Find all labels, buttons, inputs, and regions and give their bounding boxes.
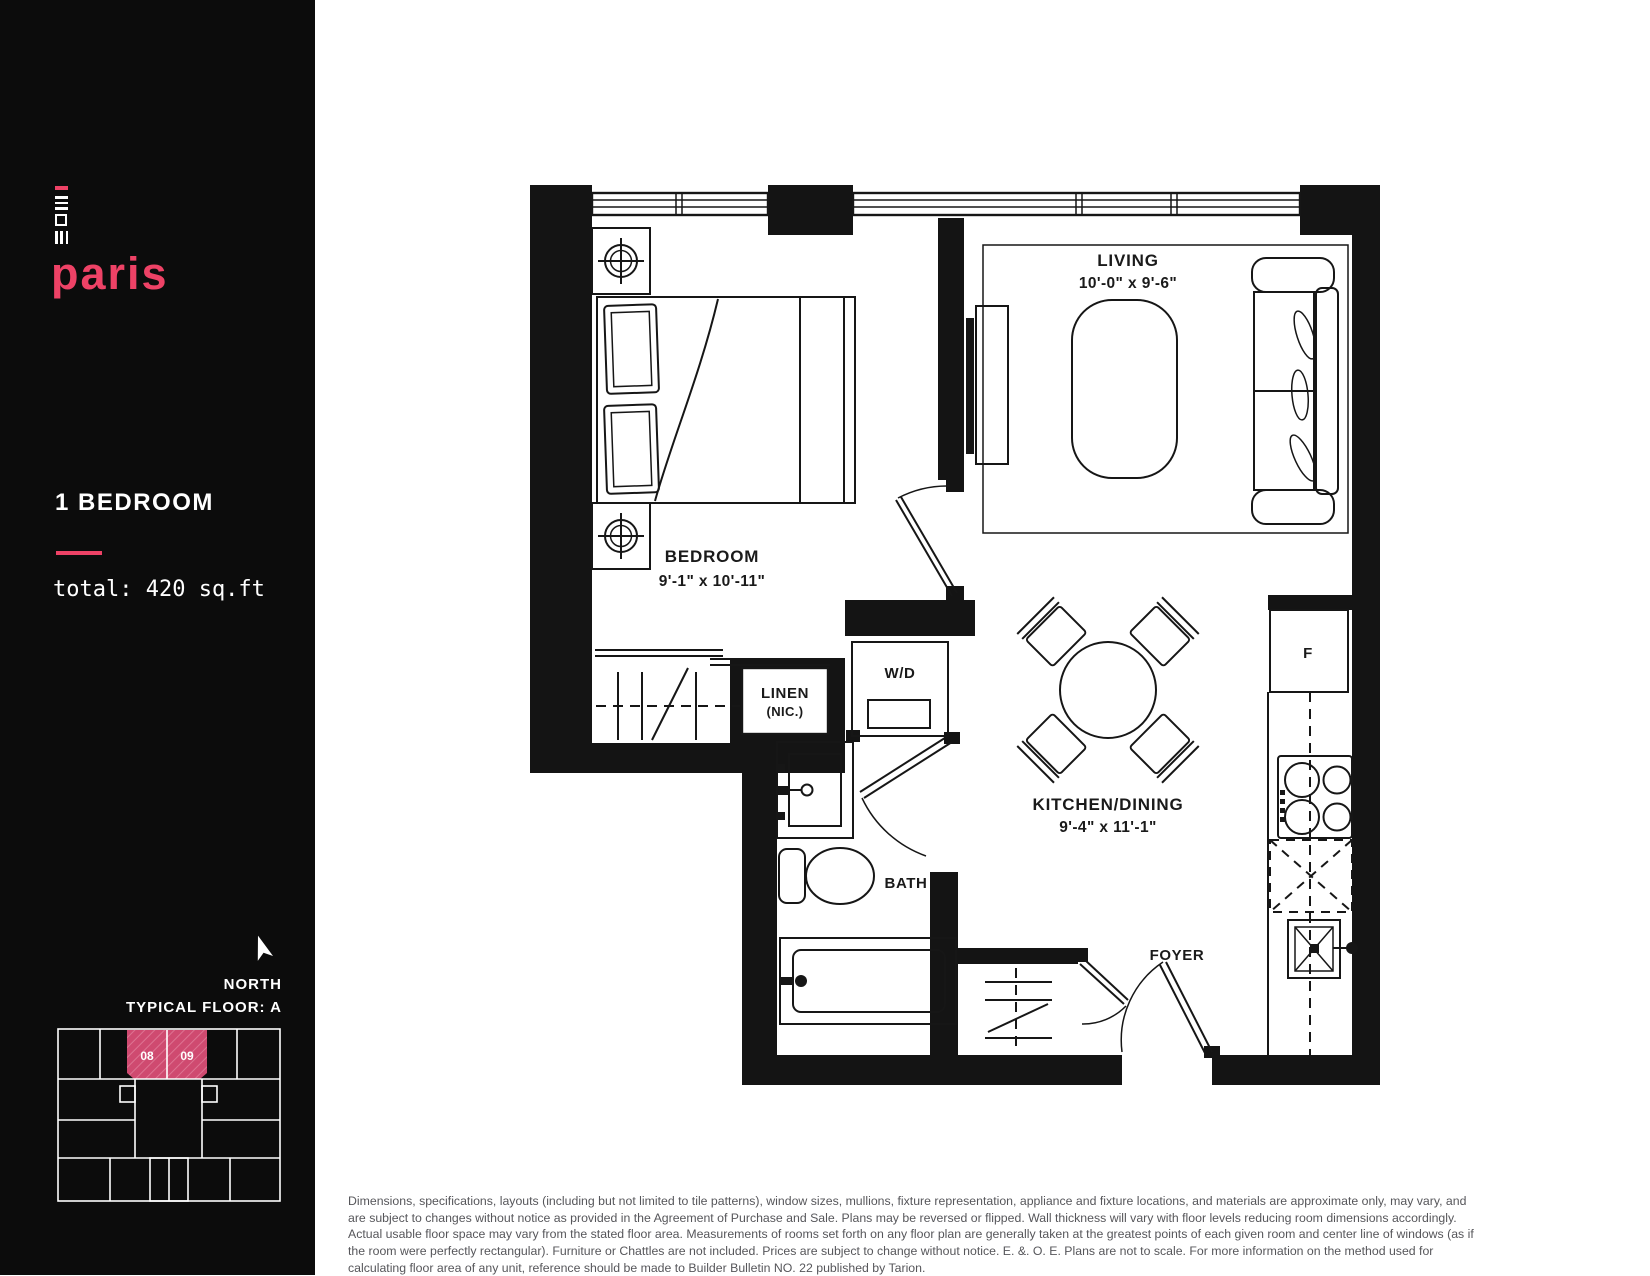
dining-chair [1017, 597, 1088, 668]
unit-type-label: 1 BEDROOM [55, 489, 214, 517]
rug [1072, 300, 1177, 478]
keyplan: 08 09 [57, 1028, 281, 1204]
wd-label: W/D [885, 665, 916, 682]
fridge-label: F [1303, 645, 1313, 662]
linen-nic-label: (NIC.) [766, 704, 803, 719]
sofa [1252, 258, 1338, 524]
plan-name-title: paris [51, 248, 169, 300]
keyplan-unit-09: 09 [180, 1049, 194, 1063]
keyplan-unit-08: 08 [140, 1049, 154, 1063]
tv [966, 318, 974, 454]
kitchen-fixtures [1268, 610, 1358, 1055]
foyer-closet [985, 968, 1052, 1050]
page: { "sidebar": { "brand": "paris", "unit_t… [0, 0, 1650, 1275]
dining-chair [1128, 597, 1199, 668]
bath-fixtures [777, 742, 956, 1024]
windows [592, 193, 1300, 215]
disclaimer-text: Dimensions, specifications, layouts (inc… [348, 1193, 1478, 1276]
foyer-label: FOYER [1150, 947, 1205, 964]
living-label: LIVING [1097, 251, 1158, 270]
bedroom-furniture [592, 228, 855, 569]
floor-plan: LIVING 10'-0" x 9'-6" BEDROOM 9'-1" x 10… [515, 178, 1390, 1093]
bath-door [860, 736, 952, 856]
bedroom-dims: 9'-1" x 10'-11" [659, 573, 766, 590]
closet-door [1080, 960, 1128, 1024]
dining-set [1017, 597, 1199, 783]
toilet-tank [779, 849, 805, 903]
kitchen-sink [1288, 920, 1358, 978]
linen-label: LINEN [761, 685, 809, 702]
tv-console [976, 306, 1008, 464]
sidebar: paris 1 BEDROOM total: 420 sq.ft NORTH T… [0, 0, 315, 1275]
bath-label: BATH [885, 875, 928, 892]
dining-chair [1017, 712, 1088, 783]
entry-door [1121, 962, 1212, 1055]
bedroom-door [896, 486, 957, 596]
north-arrow-icon [250, 933, 274, 963]
logo-square [55, 214, 67, 226]
dining-table [1060, 642, 1156, 738]
bedroom-label: BEDROOM [665, 547, 759, 566]
logo-accent-bar [55, 186, 68, 190]
washer-dryer [852, 642, 948, 736]
bed [597, 297, 855, 503]
brand-logo-icon [55, 186, 68, 244]
typical-floor-label: TYPICAL FLOOR: A [126, 999, 282, 1016]
dining-chair [1128, 712, 1199, 783]
kitchen-dims: 9'-4" x 11'-1" [1059, 819, 1156, 836]
logo-vbars [55, 231, 68, 244]
toilet-bowl [806, 848, 874, 904]
total-area-label: total: 420 sq.ft [53, 577, 265, 602]
kitchen-label: KITCHEN/DINING [1033, 795, 1184, 814]
accent-divider [56, 551, 102, 555]
living-dims: 10'-0" x 9'-6" [1079, 275, 1177, 292]
north-label: NORTH [224, 976, 282, 993]
